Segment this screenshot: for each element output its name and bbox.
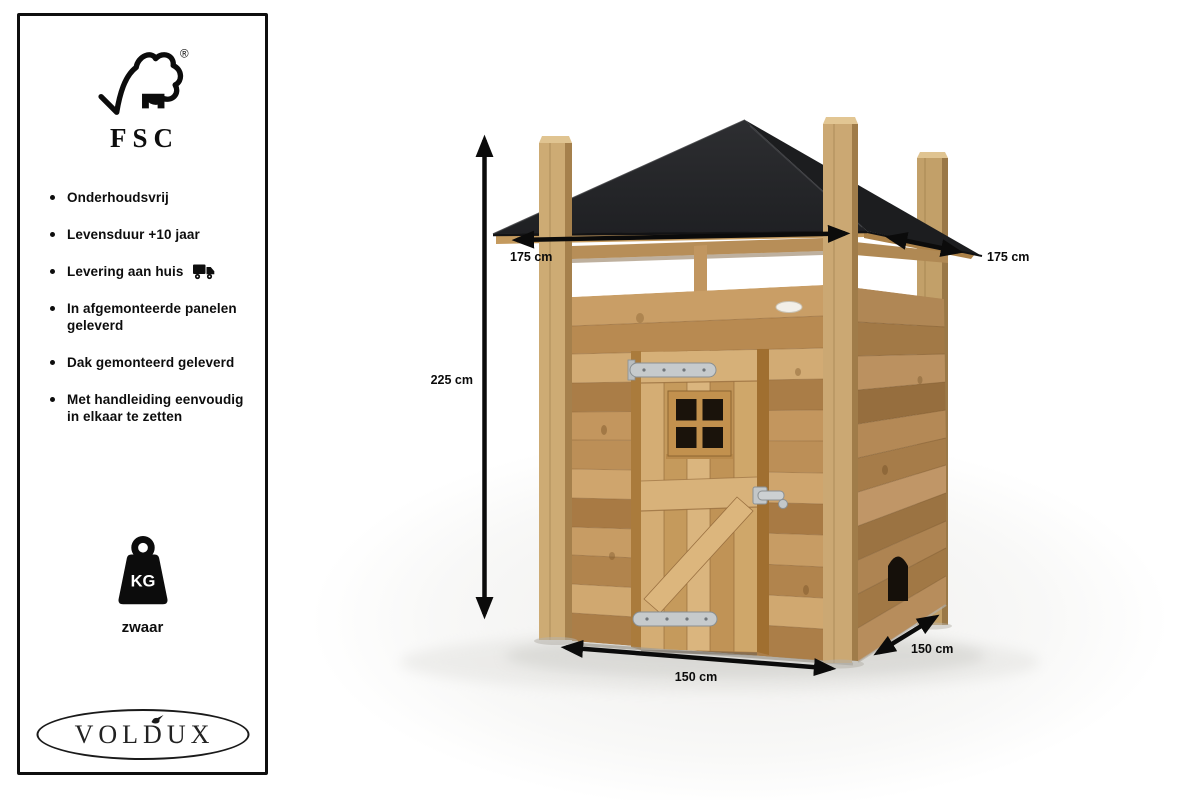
page: { "sidebar": { "fsc_label": "FSC", "regi… [0,0,1200,800]
door-window [666,391,733,459]
door-assembly [628,349,788,655]
right-side-wall [858,288,946,662]
height-dimension-label: 225 cm [431,373,473,387]
front-left-post [534,136,578,645]
base-depth-dimension-label: 150 cm [911,642,953,656]
brand-badge [776,302,802,313]
roof-width-dimension-label: 175 cm [510,250,552,264]
pet-door-opening [888,557,908,602]
product-photo: 225 cm 175 cm 175 cm 150 cm 150 cm [0,0,1200,800]
front-right-post [816,117,864,669]
roof-depth-dimension-label: 175 cm [987,250,1029,264]
base-width-dimension-label: 150 cm [675,670,717,684]
